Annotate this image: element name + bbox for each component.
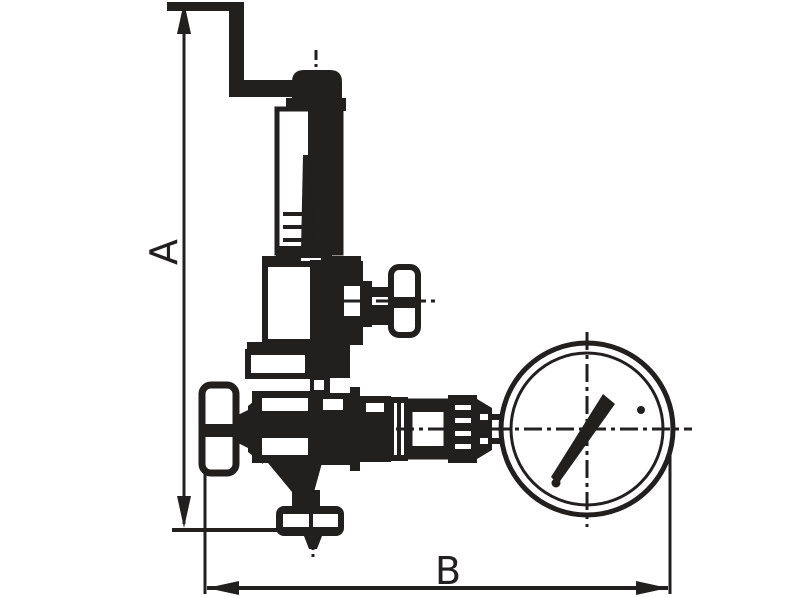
gauge-needle-tail-dot xyxy=(552,479,561,488)
valve-body xyxy=(252,391,318,463)
adjusting-stem-cap xyxy=(286,70,346,111)
gauge-dial-dot xyxy=(637,406,645,414)
dimension-b-arrow-right xyxy=(636,581,668,595)
dimension-a-arrow-down xyxy=(177,496,191,528)
valve-assembly xyxy=(167,2,503,549)
bonnet-tube xyxy=(276,109,341,258)
valve-dimension-drawing: A B xyxy=(0,0,800,598)
dimension-b-arrow-left xyxy=(207,581,239,595)
crank-handle xyxy=(167,2,302,97)
bottom-flange xyxy=(268,463,344,536)
dimension-a-label: A xyxy=(142,239,186,265)
spring-housing xyxy=(247,256,362,394)
dimension-b-label: B xyxy=(435,549,461,593)
